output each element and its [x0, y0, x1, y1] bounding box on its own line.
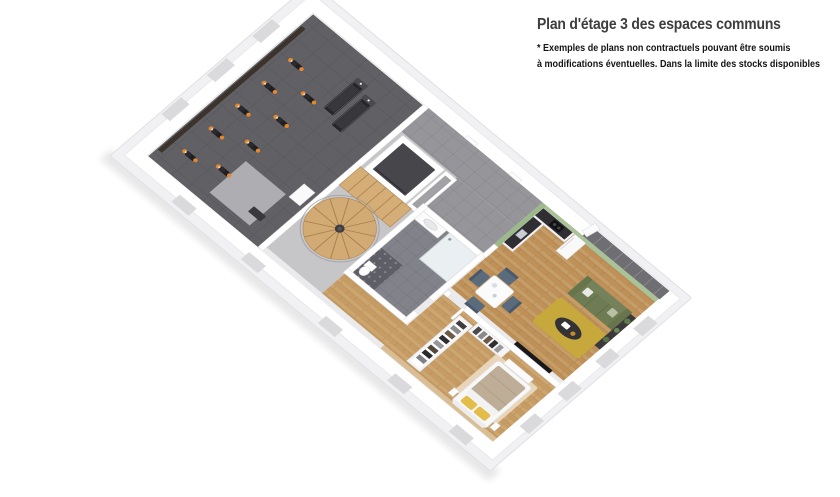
floor-plan-3d [0, 0, 840, 497]
disclaimer-line-1: * Exemples de plans non contractuels pou… [537, 41, 795, 57]
disclaimer-line-2: à modifications éventuelles. Dans la lim… [537, 57, 795, 73]
page-title: Plan d'étage 3 des espaces communs [537, 16, 807, 34]
caption: Plan d'étage 3 des espaces communs * Exe… [537, 16, 837, 73]
disclaimer: * Exemples de plans non contractuels pou… [537, 41, 795, 73]
page: Plan d'étage 3 des espaces communs * Exe… [0, 0, 840, 497]
